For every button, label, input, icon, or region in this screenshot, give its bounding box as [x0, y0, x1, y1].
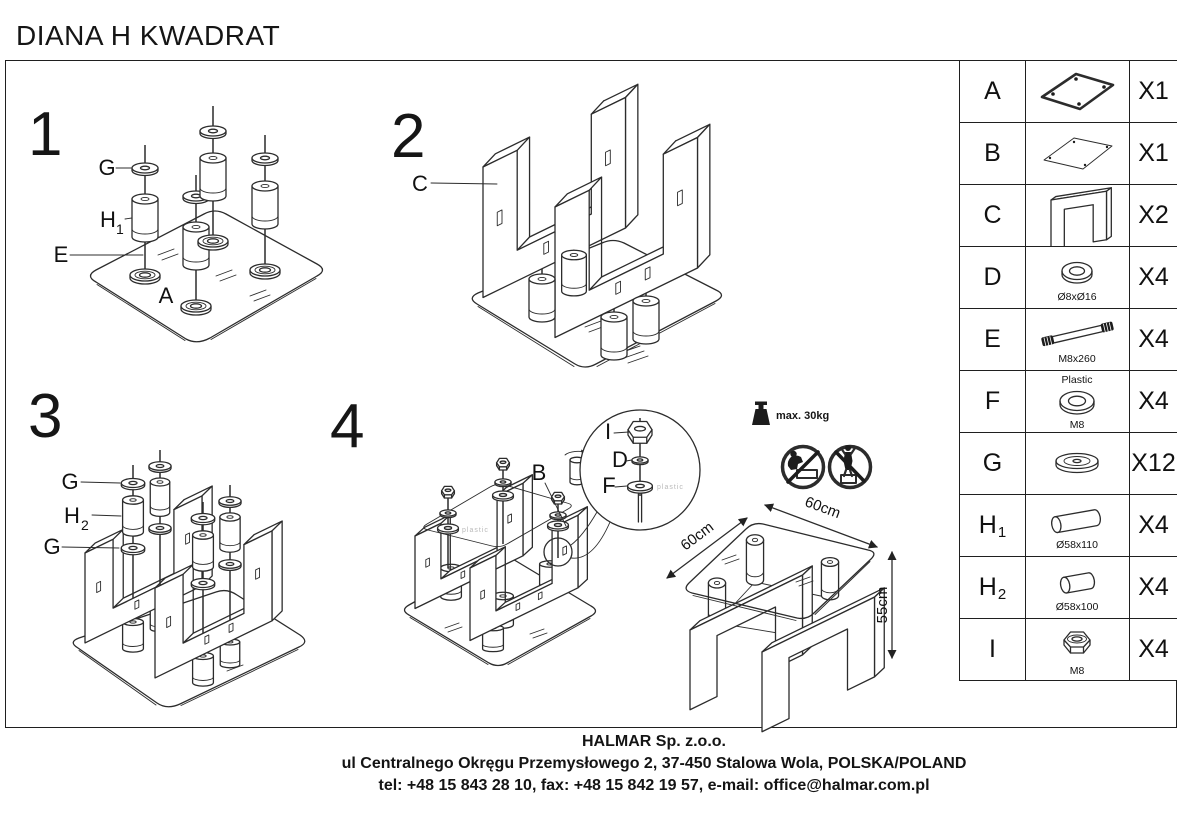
part-id: H — [979, 511, 997, 540]
table-row: B X1 — [960, 123, 1177, 185]
max-load-text: max. 30kg — [776, 410, 829, 422]
washer-icon: Ø8xØ16 — [1028, 248, 1127, 308]
footer: HALMAR Sp. z.o.o. ul Centralnego Okręgu … — [120, 731, 1188, 797]
part-id-sub: 1 — [998, 524, 1006, 541]
svg-text:M8: M8 — [1070, 419, 1085, 431]
plastic-washer-icon: Plastic M8 — [1028, 372, 1127, 432]
part-qty: X4 — [1130, 557, 1177, 618]
final-assembly-illustration: 60cm 60cm 55cm — [650, 478, 950, 728]
part-qty: X1 — [1130, 123, 1177, 184]
label-part-e: E — [54, 242, 69, 267]
svg-text:60cm: 60cm — [678, 519, 718, 555]
svg-text:Plastic: Plastic — [1062, 374, 1093, 386]
label-part-b: B — [532, 460, 547, 485]
part-id: D — [960, 247, 1026, 308]
part-qty: X4 — [1130, 247, 1177, 308]
part-id: C — [960, 185, 1026, 246]
table-row: G X12 — [960, 433, 1177, 495]
tube-long-icon: Ø58x110 — [1028, 496, 1127, 556]
disc-washer-icon — [1028, 434, 1127, 494]
part-qty: X4 — [1130, 371, 1177, 432]
part-qty: X12 — [1130, 433, 1177, 494]
threaded-rod-icon: M8x260 — [1028, 310, 1127, 370]
plastic-note: plastic — [462, 527, 489, 534]
glass-shelf-icon — [1028, 124, 1127, 184]
part-id: B — [960, 123, 1026, 184]
footer-company: HALMAR Sp. z.o.o. — [120, 731, 1188, 753]
table-row: A X1 — [960, 61, 1177, 123]
label-part-g: G — [98, 155, 115, 180]
max-load-icon — [752, 402, 770, 426]
step1-illustration: G H 1 E A — [20, 88, 356, 394]
label-part-h: H — [64, 503, 80, 528]
svg-text:Ø58x110: Ø58x110 — [1056, 539, 1098, 551]
label-part-d: D — [612, 447, 628, 472]
part-id: I — [960, 619, 1026, 680]
glass-top-icon — [1028, 62, 1127, 122]
table-row: C X2 — [960, 185, 1177, 247]
part-qty: X4 — [1130, 309, 1177, 370]
label-part-g-bottom: G — [43, 534, 60, 559]
label-part-g-top: G — [61, 469, 78, 494]
part-qty: X4 — [1130, 495, 1177, 556]
table-row: I M8 X4 — [960, 619, 1177, 681]
svg-text:M8x260: M8x260 — [1058, 353, 1096, 365]
step2-illustration: C — [375, 63, 757, 399]
table-row: H2 Ø58x100 X4 — [960, 557, 1177, 619]
nut-icon: M8 — [1028, 620, 1127, 680]
parts-table: A X1 B — [959, 61, 1177, 681]
label-part-f: F — [602, 473, 615, 498]
label-part-h-sub: 2 — [81, 517, 89, 533]
step3-illustration: G H 2 G — [20, 390, 356, 726]
part-qty: X1 — [1130, 61, 1177, 122]
dimension-left: 60cm — [667, 518, 747, 578]
footer-contact: tel: +48 15 843 28 10, fax: +48 15 842 1… — [120, 775, 1188, 797]
svg-text:Ø8xØ16: Ø8xØ16 — [1057, 291, 1096, 303]
part-qty: X4 — [1130, 619, 1177, 680]
svg-text:60cm: 60cm — [802, 493, 842, 522]
label-part-a: A — [159, 283, 174, 308]
part-id-sub: 2 — [998, 586, 1006, 603]
svg-text:Ø58x100: Ø58x100 — [1056, 601, 1099, 613]
table-row: E M8x260 X4 — [960, 309, 1177, 371]
label-part-i: I — [605, 419, 611, 444]
svg-text:M8: M8 — [1070, 665, 1085, 677]
label-part-h-sub: 1 — [116, 221, 124, 237]
table-row: F Plastic M8 X4 — [960, 371, 1177, 433]
table-row: H1 Ø58x110 X4 — [960, 495, 1177, 557]
part-id: F — [960, 371, 1026, 432]
tube-short-icon: Ø58x100 — [1028, 558, 1127, 618]
table-row: D Ø8xØ16 X4 — [960, 247, 1177, 309]
page-title: DIANA H KWADRAT — [16, 20, 280, 52]
svg-text:55cm: 55cm — [874, 587, 891, 624]
part-id: A — [960, 61, 1026, 122]
label-part-h: H — [100, 207, 116, 232]
leg-frame-icon — [1028, 186, 1127, 246]
part-qty: X2 — [1130, 185, 1177, 246]
label-part-c: C — [412, 171, 428, 196]
part-id: E — [960, 309, 1026, 370]
part-id: G — [960, 433, 1026, 494]
assembly-instruction-sheet: DIANA H KWADRAT A X1 B — [0, 0, 1188, 815]
footer-address: ul Centralnego Okręgu Przemysłowego 2, 3… — [120, 753, 1188, 775]
part-id: H — [979, 573, 997, 602]
